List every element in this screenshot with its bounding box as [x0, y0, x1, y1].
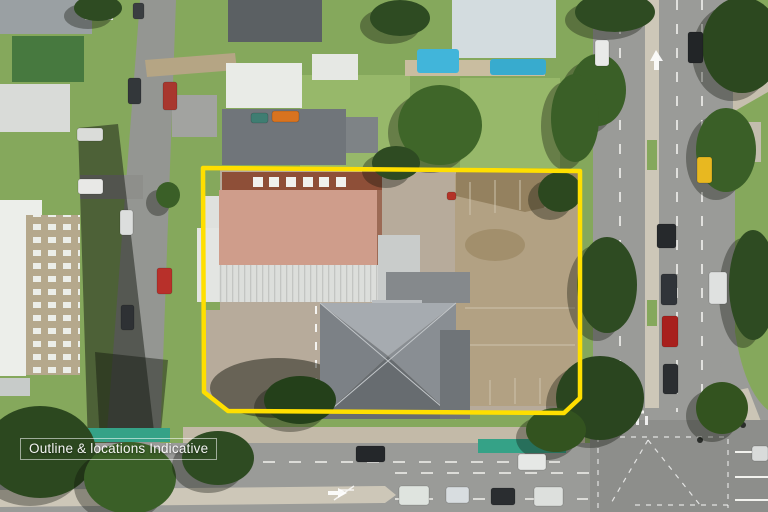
median-grass [647, 140, 657, 170]
vehicle-car-white [399, 486, 429, 505]
vehicle-car-black [657, 224, 676, 248]
swimming-pool-2 [490, 59, 546, 75]
vehicle-suv-dark [356, 446, 385, 462]
vehicle-car-black [688, 32, 703, 63]
vehicle-car-orange [272, 111, 299, 122]
vehicle-car-white [120, 210, 133, 235]
vehicle-car-white [446, 487, 469, 503]
vehicle-car-dark [121, 305, 134, 330]
white-shed [312, 54, 358, 80]
pale-roof-house [452, 0, 556, 58]
green-roof-house [12, 36, 84, 82]
median-grass [647, 300, 657, 326]
swimming-pool [417, 49, 459, 73]
tree [538, 172, 582, 212]
vehicle-car-dark [491, 488, 515, 505]
tree [551, 74, 599, 162]
vehicle-van-white [78, 179, 103, 194]
vehicle-car-teal [251, 113, 268, 123]
vehicle-car-white [518, 454, 546, 470]
vehicle-car-white [709, 272, 727, 304]
vehicle-car-dark [128, 78, 141, 104]
aerial-photo-canvas [0, 0, 768, 512]
aerial-photo: Outline & locations Indicative [0, 0, 768, 512]
terracotta-roof [219, 190, 381, 267]
roof-corner [0, 378, 30, 396]
vehicle-car-red [157, 268, 172, 294]
hipped-roof [320, 303, 470, 419]
dirt-stain [465, 229, 525, 261]
vehicle-boat [77, 128, 103, 141]
vehicle-car-red [662, 316, 678, 347]
dark-roof-wing [386, 272, 470, 303]
tree [370, 0, 430, 36]
tree [156, 182, 180, 208]
vehicle-car-dark [661, 274, 677, 305]
white-hip-roof-house [226, 63, 302, 108]
tree [372, 146, 420, 180]
roof-ridge [222, 172, 382, 192]
vehicle-car-white [595, 40, 609, 66]
roof-extension [440, 330, 470, 419]
vehicle-car-red [163, 82, 177, 110]
vehicle-car-yellow [697, 157, 712, 183]
vehicle-car-dark [133, 3, 144, 19]
vehicle-car-dark [663, 364, 678, 394]
apartment-facade [26, 215, 80, 375]
vehicle-object-red [447, 192, 456, 200]
parking-pad [172, 95, 217, 137]
grey-roof-wing [346, 117, 378, 153]
white-awning-2 [197, 228, 221, 302]
dark-grey-roof-house [228, 0, 322, 42]
vehicle-ute-white [534, 487, 563, 506]
tree [577, 237, 637, 333]
tree [696, 382, 748, 434]
white-ribbed-roof [219, 265, 379, 302]
white-gable-house [0, 84, 70, 132]
vehicle-car-white [752, 446, 768, 461]
tree [264, 376, 336, 424]
watermark-text: Outline & locations Indicative [20, 438, 217, 460]
